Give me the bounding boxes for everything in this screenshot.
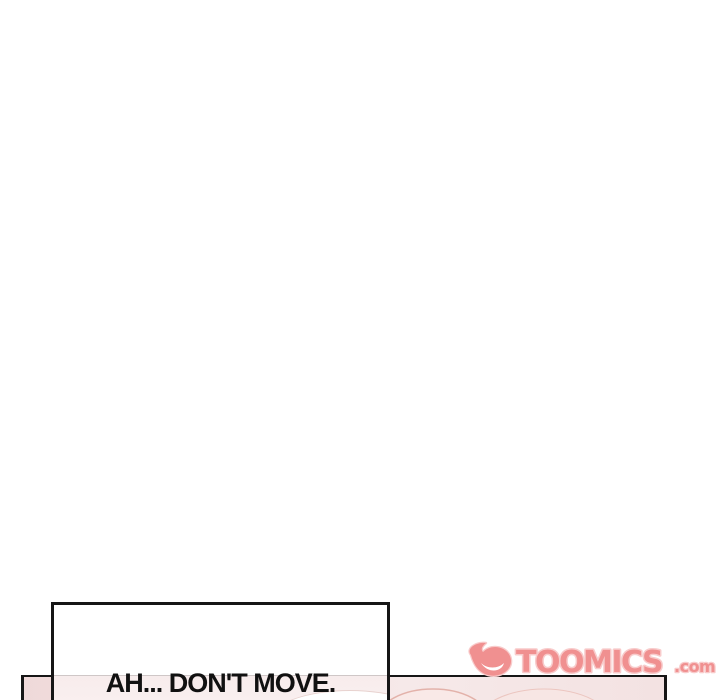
- toomics-logo-suffix: .com: [674, 657, 715, 676]
- webtoon-viewer-page: AH... DON'T MOVE. TOOMICS .com: [0, 0, 720, 700]
- toomics-logo-text: TOOMICS: [516, 645, 662, 680]
- speech-bubble: AH... DON'T MOVE.: [51, 602, 390, 700]
- toomics-watermark: TOOMICS .com: [464, 639, 718, 681]
- toomics-logo-graphic: TOOMICS .com: [464, 639, 718, 681]
- toomics-swoosh-icon: [470, 643, 511, 676]
- speech-bubble-text: AH... DON'T MOVE.: [54, 668, 387, 699]
